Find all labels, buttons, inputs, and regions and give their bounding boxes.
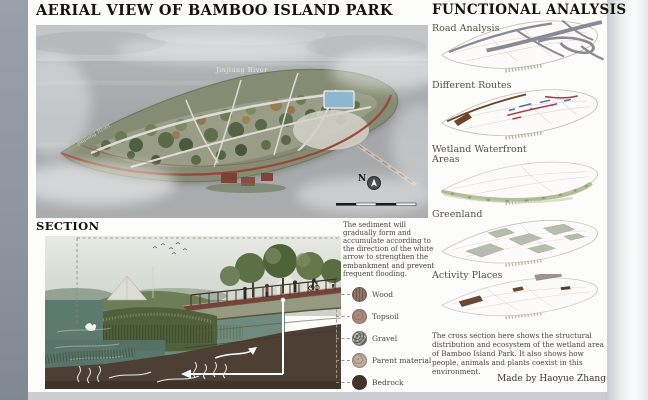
legend-swatch-topsoil [352, 309, 367, 324]
diagram-greenland [435, 216, 607, 270]
legend-row-wood: Wood [336, 283, 431, 305]
bottom-background-strip [28, 392, 605, 400]
aerial-view-image: Jinjiang River Jinjiang River N [36, 25, 428, 218]
river-label: Jinjiang River [215, 66, 268, 74]
sediment-note: The sediment will gradually form and acc… [343, 221, 435, 278]
legend-row-bedrock: Bedrock [336, 371, 431, 393]
right-background-strip [605, 0, 648, 400]
svg-text:N: N [358, 174, 366, 184]
author-credit: Made by Haoyue Zhang [432, 374, 606, 384]
presentation-board: AERIAL VIEW OF BAMBOO ISLAND PARK FUNCTI… [0, 0, 648, 400]
label-road-analysis: Road Analysis [432, 24, 499, 34]
section-drawing [45, 236, 341, 389]
aerial-plaza [293, 110, 369, 150]
legend-row-gravel: Gravel [336, 327, 431, 349]
aerial-view-title: AERIAL VIEW OF BAMBOO ISLAND PARK [36, 2, 393, 19]
label-wetland-waterfront-areas: Wetland Waterfront Areas [432, 145, 532, 166]
scale-bar [336, 203, 416, 206]
legend-row-topsoil: Topsoil [336, 305, 431, 327]
diagram-different-routes [435, 85, 607, 143]
aerial-pool [324, 91, 354, 108]
left-background-strip [0, 0, 28, 400]
legend-swatch-parent-material [352, 353, 367, 368]
legend-swatch-bedrock [352, 375, 367, 390]
label-greenland: Greenland [432, 210, 482, 220]
board: AERIAL VIEW OF BAMBOO ISLAND PARK FUNCTI… [28, 0, 607, 392]
legend-swatch-wood [352, 287, 367, 302]
legend-row-parent-material: Parent material [336, 349, 431, 371]
functional-description: The cross section here shows the structu… [432, 331, 608, 376]
legend-swatch-gravel [352, 331, 367, 346]
section-title: SECTION [36, 219, 100, 233]
soil-legend: Wood Topsoil Gravel Parent material Bedr [336, 283, 431, 393]
label-activity-places: Activity Places [432, 271, 503, 281]
label-different-routes: Different Routes [432, 81, 511, 91]
